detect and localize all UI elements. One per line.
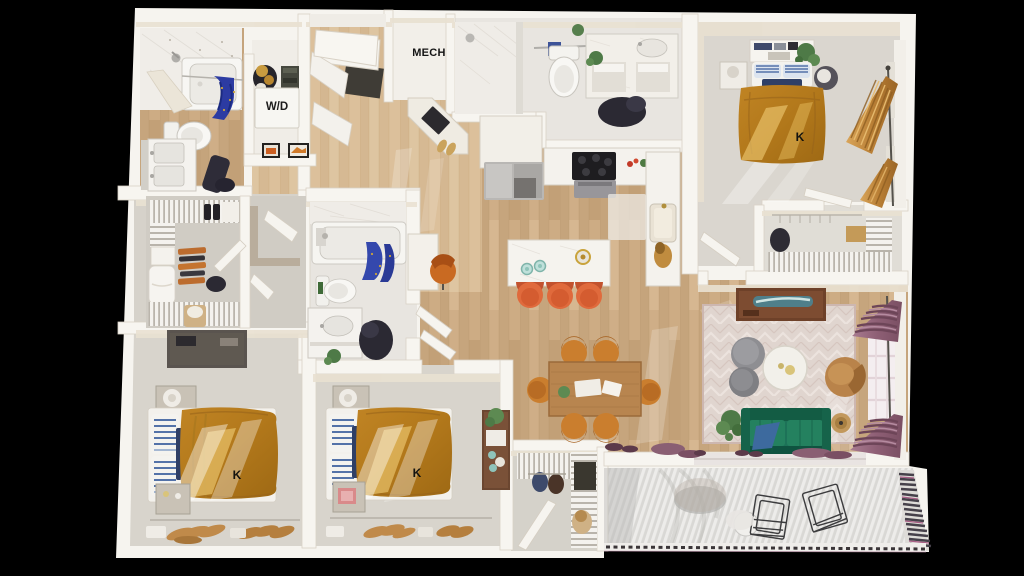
svg-text:K: K [233, 468, 242, 482]
svg-text:W/D: W/D [266, 101, 288, 113]
svg-text:K: K [796, 130, 805, 144]
svg-text:K: K [413, 466, 422, 480]
svg-text:MECH: MECH [412, 47, 446, 59]
